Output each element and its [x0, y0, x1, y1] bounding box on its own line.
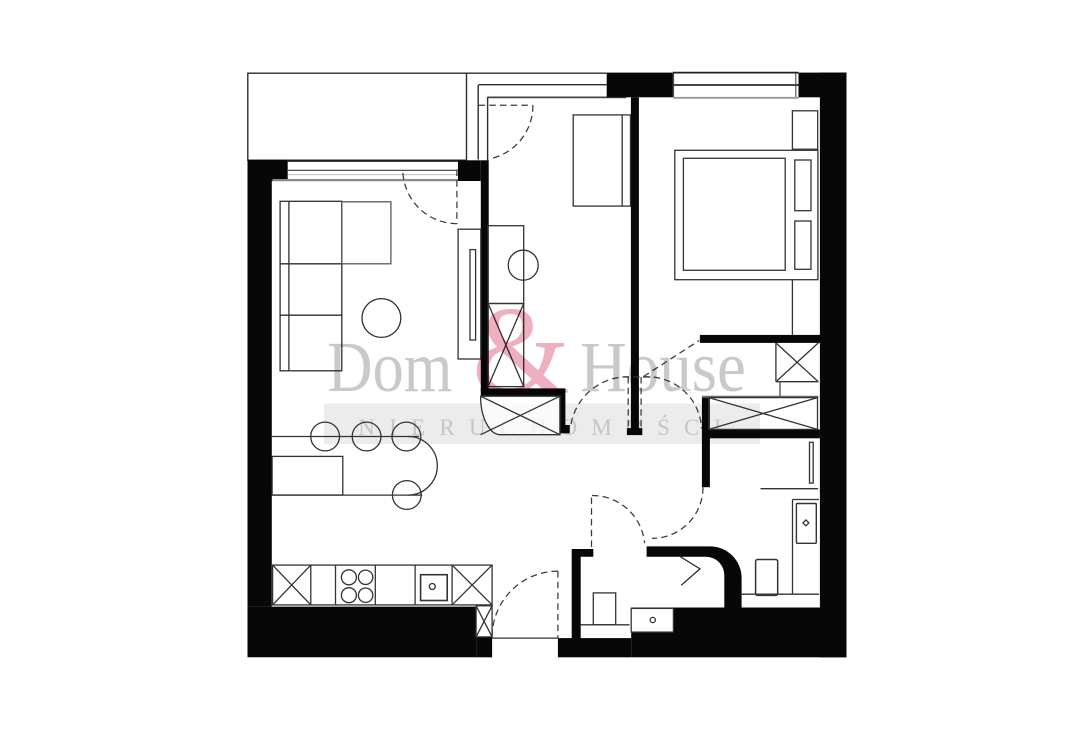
svg-text:House: House — [580, 327, 746, 407]
svg-text:Dom: Dom — [327, 327, 452, 407]
svg-text:&: & — [472, 282, 570, 421]
